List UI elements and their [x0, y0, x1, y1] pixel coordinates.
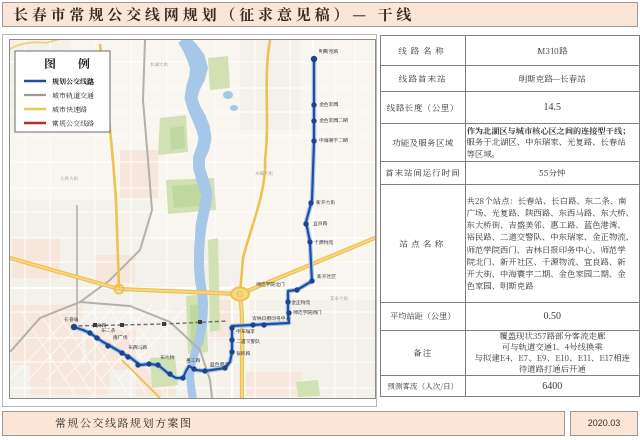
svg-text:惠工路: 惠工路 [186, 357, 201, 364]
svg-text:新开大街: 新开大街 [316, 199, 335, 206]
svg-text:城市快速路: 城市快速路 [52, 105, 87, 115]
svg-text:二道交警队: 二道交警队 [236, 338, 261, 345]
svg-text:图例: 图例 [44, 55, 112, 72]
svg-text:中海寰宇二期: 中海寰宇二期 [319, 137, 348, 144]
svg-text:宜良路: 宜良路 [313, 220, 328, 227]
svg-text:规划公交线路: 规划公交线路 [52, 77, 95, 87]
svg-text:城市轨道交通: 城市轨道交通 [52, 91, 94, 101]
svg-text:金正物流: 金正物流 [291, 299, 310, 306]
svg-text:师范学院北门: 师范学院北门 [256, 281, 285, 288]
svg-text:人民大街: 人民大街 [60, 176, 78, 182]
svg-text:北湖大街: 北湖大街 [150, 62, 168, 68]
svg-text:千源物流: 千源物流 [314, 239, 333, 246]
svg-text:新开社区: 新开社区 [317, 273, 336, 280]
svg-text:中东瑞家: 中东瑞家 [236, 328, 255, 335]
svg-text:南广场: 南广场 [113, 334, 129, 341]
svg-text:蓝色港湾: 蓝色港湾 [209, 361, 229, 368]
svg-text:长白路: 长白路 [92, 322, 107, 329]
svg-text:金色家园二期: 金色家园二期 [319, 117, 348, 124]
svg-text:常规公交线路: 常规公交线路 [52, 119, 94, 129]
svg-text:亚泰大街: 亚泰大街 [330, 295, 348, 302]
svg-text:明斯克路: 明斯克路 [319, 48, 338, 55]
svg-text:吉林日报印务中心: 吉林日报印务中心 [252, 315, 291, 322]
svg-text:师范学院西门: 师范学院西门 [293, 309, 322, 316]
svg-text:东盛大街: 东盛大街 [255, 170, 273, 177]
svg-text:东西马路: 东西马路 [128, 344, 147, 351]
svg-text:金色家园: 金色家园 [319, 101, 338, 108]
svg-text:长春站: 长春站 [64, 316, 79, 323]
svg-text:裕民路: 裕民路 [236, 350, 251, 357]
svg-text:东大桥: 东大桥 [160, 354, 175, 361]
